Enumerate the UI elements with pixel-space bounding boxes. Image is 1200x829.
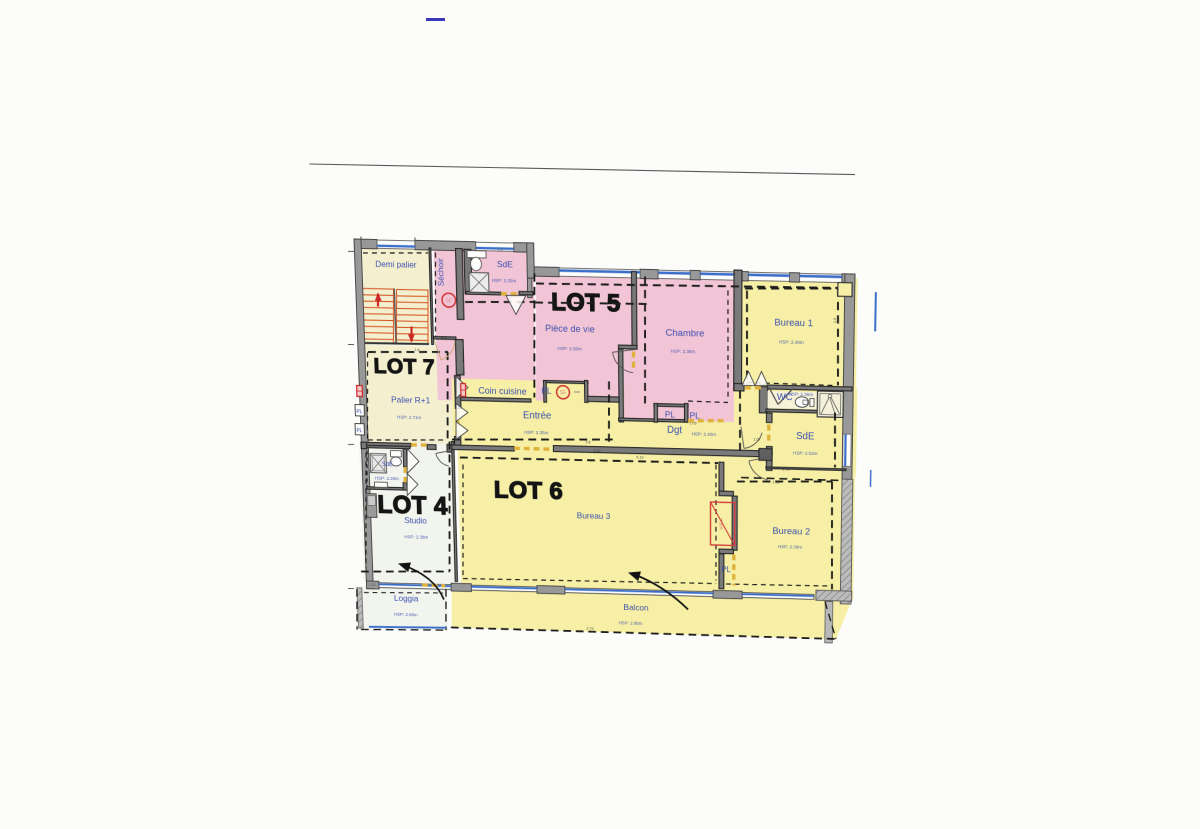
svg-text:HSP: 2.30m: HSP: 2.30m bbox=[778, 544, 802, 549]
svg-text:2.0: 2.0 bbox=[441, 335, 446, 339]
svg-text:1.05: 1.05 bbox=[689, 421, 696, 425]
svg-text:HSP: 2.40m: HSP: 2.40m bbox=[692, 431, 716, 437]
svg-text:HSP: 2.65m: HSP: 2.65m bbox=[394, 612, 418, 617]
svg-text:Balcon: Balcon bbox=[623, 602, 648, 612]
svg-text:PL: PL bbox=[541, 385, 552, 395]
svg-text:2.79: 2.79 bbox=[586, 626, 593, 630]
svg-text:2.76: 2.76 bbox=[782, 467, 789, 471]
svg-text:LOT 7: LOT 7 bbox=[373, 352, 435, 378]
svg-text:PL: PL bbox=[721, 565, 731, 574]
svg-text:Dgt: Dgt bbox=[667, 425, 682, 436]
svg-text:LOT 6: LOT 6 bbox=[494, 476, 564, 505]
svg-text:Demi palier: Demi palier bbox=[375, 258, 417, 269]
svg-text:SdE: SdE bbox=[796, 430, 815, 441]
svg-text:HSP: 2.71m: HSP: 2.71m bbox=[397, 414, 421, 420]
svg-text:PL: PL bbox=[356, 428, 362, 434]
svg-text:1.8: 1.8 bbox=[414, 347, 419, 351]
svg-text:Bureau 2: Bureau 2 bbox=[772, 525, 810, 537]
svg-text:Bureau 1: Bureau 1 bbox=[774, 317, 813, 329]
svg-text:HSP: 2.28m: HSP: 2.28m bbox=[375, 475, 399, 480]
svg-text:Bureau 3: Bureau 3 bbox=[577, 510, 611, 521]
svg-text:PL: PL bbox=[356, 408, 362, 414]
svg-text:Pièce de vie: Pièce de vie bbox=[545, 323, 595, 334]
svg-text:1.6: 1.6 bbox=[833, 317, 837, 323]
svg-text:HSP: 2.35m: HSP: 2.35m bbox=[492, 277, 517, 283]
svg-text:PL: PL bbox=[690, 410, 700, 420]
svg-text:2.2: 2.2 bbox=[497, 248, 502, 252]
svg-text:3.8: 3.8 bbox=[585, 440, 590, 444]
svg-text:1.67: 1.67 bbox=[753, 437, 760, 441]
svg-text:Palier R+1: Palier R+1 bbox=[391, 394, 431, 405]
svg-text:HSP: 2.35m: HSP: 2.35m bbox=[524, 429, 548, 435]
svg-text:PL: PL bbox=[665, 409, 675, 419]
svg-text:SE: SE bbox=[560, 390, 567, 396]
svg-text:H.E.A: H.E.A bbox=[719, 517, 724, 530]
svg-text:Entrée: Entrée bbox=[523, 410, 552, 422]
svg-text:Coin cuisine: Coin cuisine bbox=[478, 385, 526, 396]
svg-text:HSP: 2.55m: HSP: 2.55m bbox=[557, 345, 582, 351]
svg-text:1.30: 1.30 bbox=[772, 480, 779, 484]
svg-text:SdE: SdE bbox=[382, 460, 393, 467]
svg-text:5.10: 5.10 bbox=[636, 455, 643, 459]
svg-text:HSP: 2.36m: HSP: 2.36m bbox=[788, 391, 813, 397]
svg-text:1.6: 1.6 bbox=[833, 437, 837, 442]
svg-text:Studio: Studio bbox=[404, 515, 427, 525]
svg-text:HSP: 2.40m: HSP: 2.40m bbox=[779, 339, 804, 345]
svg-text:SE: SE bbox=[445, 298, 452, 304]
svg-text:SdE: SdE bbox=[497, 258, 513, 269]
svg-text:HSP: 2.95m: HSP: 2.95m bbox=[619, 620, 643, 625]
svg-text:HSP: 2.38m: HSP: 2.38m bbox=[671, 348, 696, 354]
svg-text:3.10: 3.10 bbox=[593, 448, 600, 452]
svg-text:HSP: 2.52m: HSP: 2.52m bbox=[793, 450, 818, 456]
svg-text:Loggia: Loggia bbox=[394, 593, 419, 603]
svg-text:HSP: 2.38m: HSP: 2.38m bbox=[404, 534, 428, 539]
svg-text:Chambre: Chambre bbox=[666, 327, 705, 339]
svg-text:1.10: 1.10 bbox=[368, 582, 375, 586]
svg-text:Séchoir: Séchoir bbox=[436, 257, 446, 285]
